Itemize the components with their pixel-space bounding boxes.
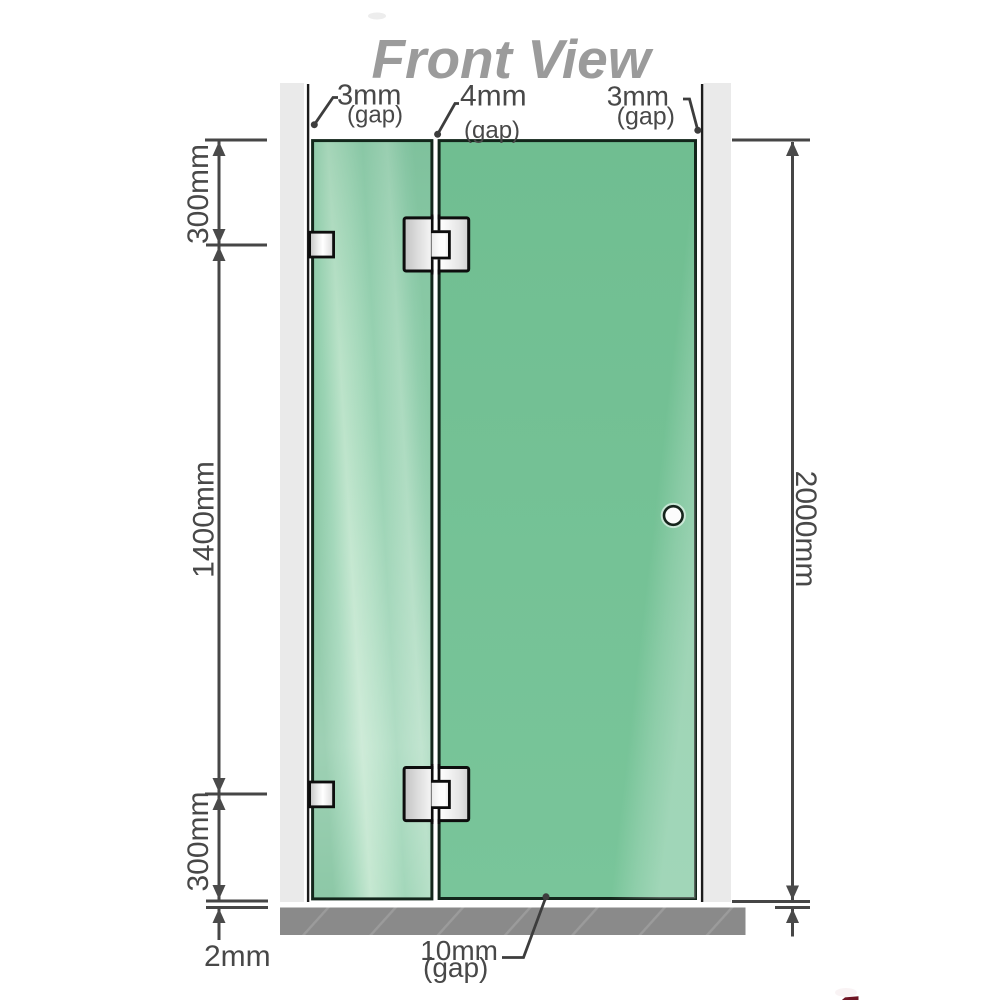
svg-text:1400mm: 1400mm	[188, 461, 221, 578]
svg-text:(gap): (gap)	[617, 103, 675, 131]
svg-text:(gap): (gap)	[423, 952, 488, 983]
svg-text:(gap): (gap)	[347, 102, 403, 129]
svg-text:300mm: 300mm	[182, 144, 215, 244]
svg-text:2mm: 2mm	[204, 940, 271, 973]
svg-text:(gap): (gap)	[464, 117, 520, 144]
svg-text:2000mm: 2000mm	[789, 471, 822, 588]
svg-text:300mm: 300mm	[182, 791, 215, 891]
svg-text:4mm: 4mm	[460, 80, 527, 113]
